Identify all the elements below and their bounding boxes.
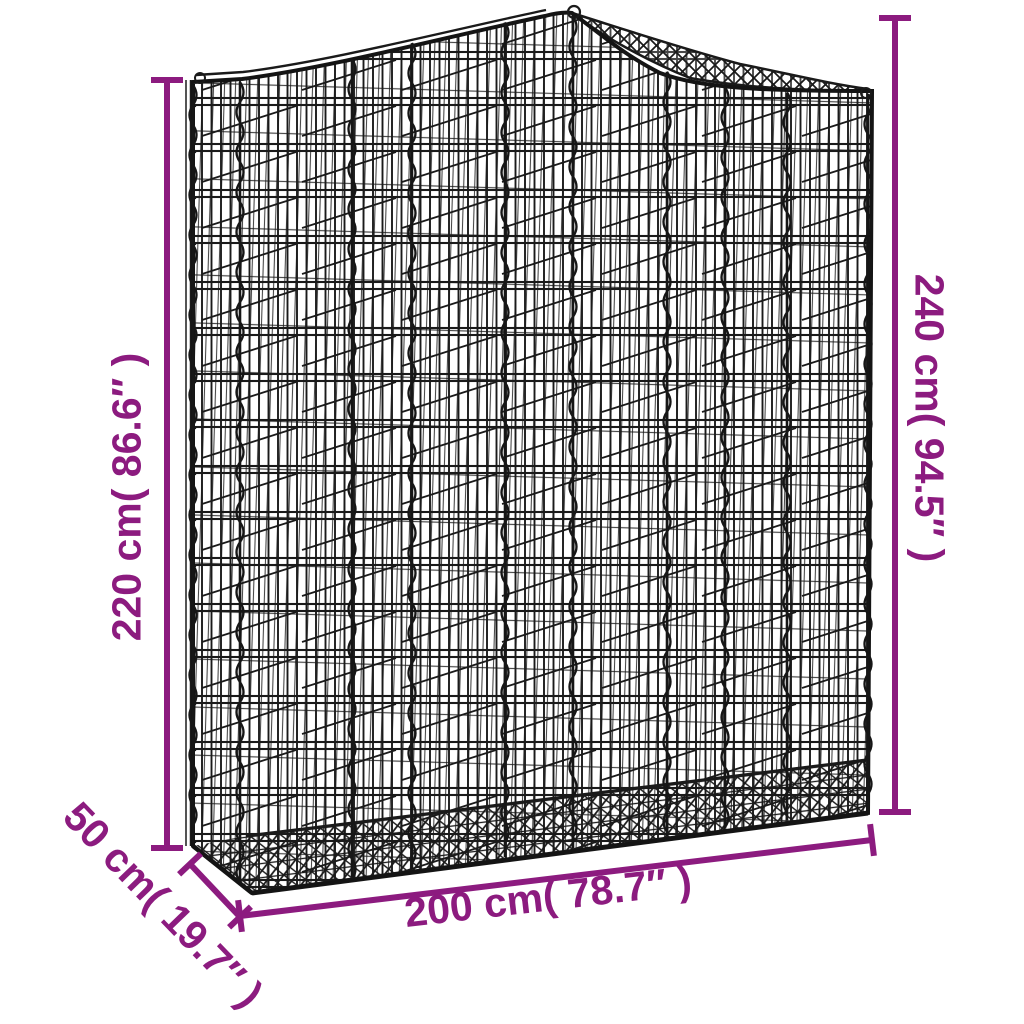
product-dimension-diagram: 220 cm( 86.6″ ) 240 cm( 94.5″ ) 200 cm( … (0, 0, 1024, 1024)
dimension-line-left-height (151, 80, 183, 848)
gabion-basket (180, 0, 880, 900)
dimension-label-left-height: 220 cm( 86.6″ ) (107, 353, 148, 642)
dimension-label-right-height: 240 cm( 94.5″ ) (909, 274, 950, 563)
